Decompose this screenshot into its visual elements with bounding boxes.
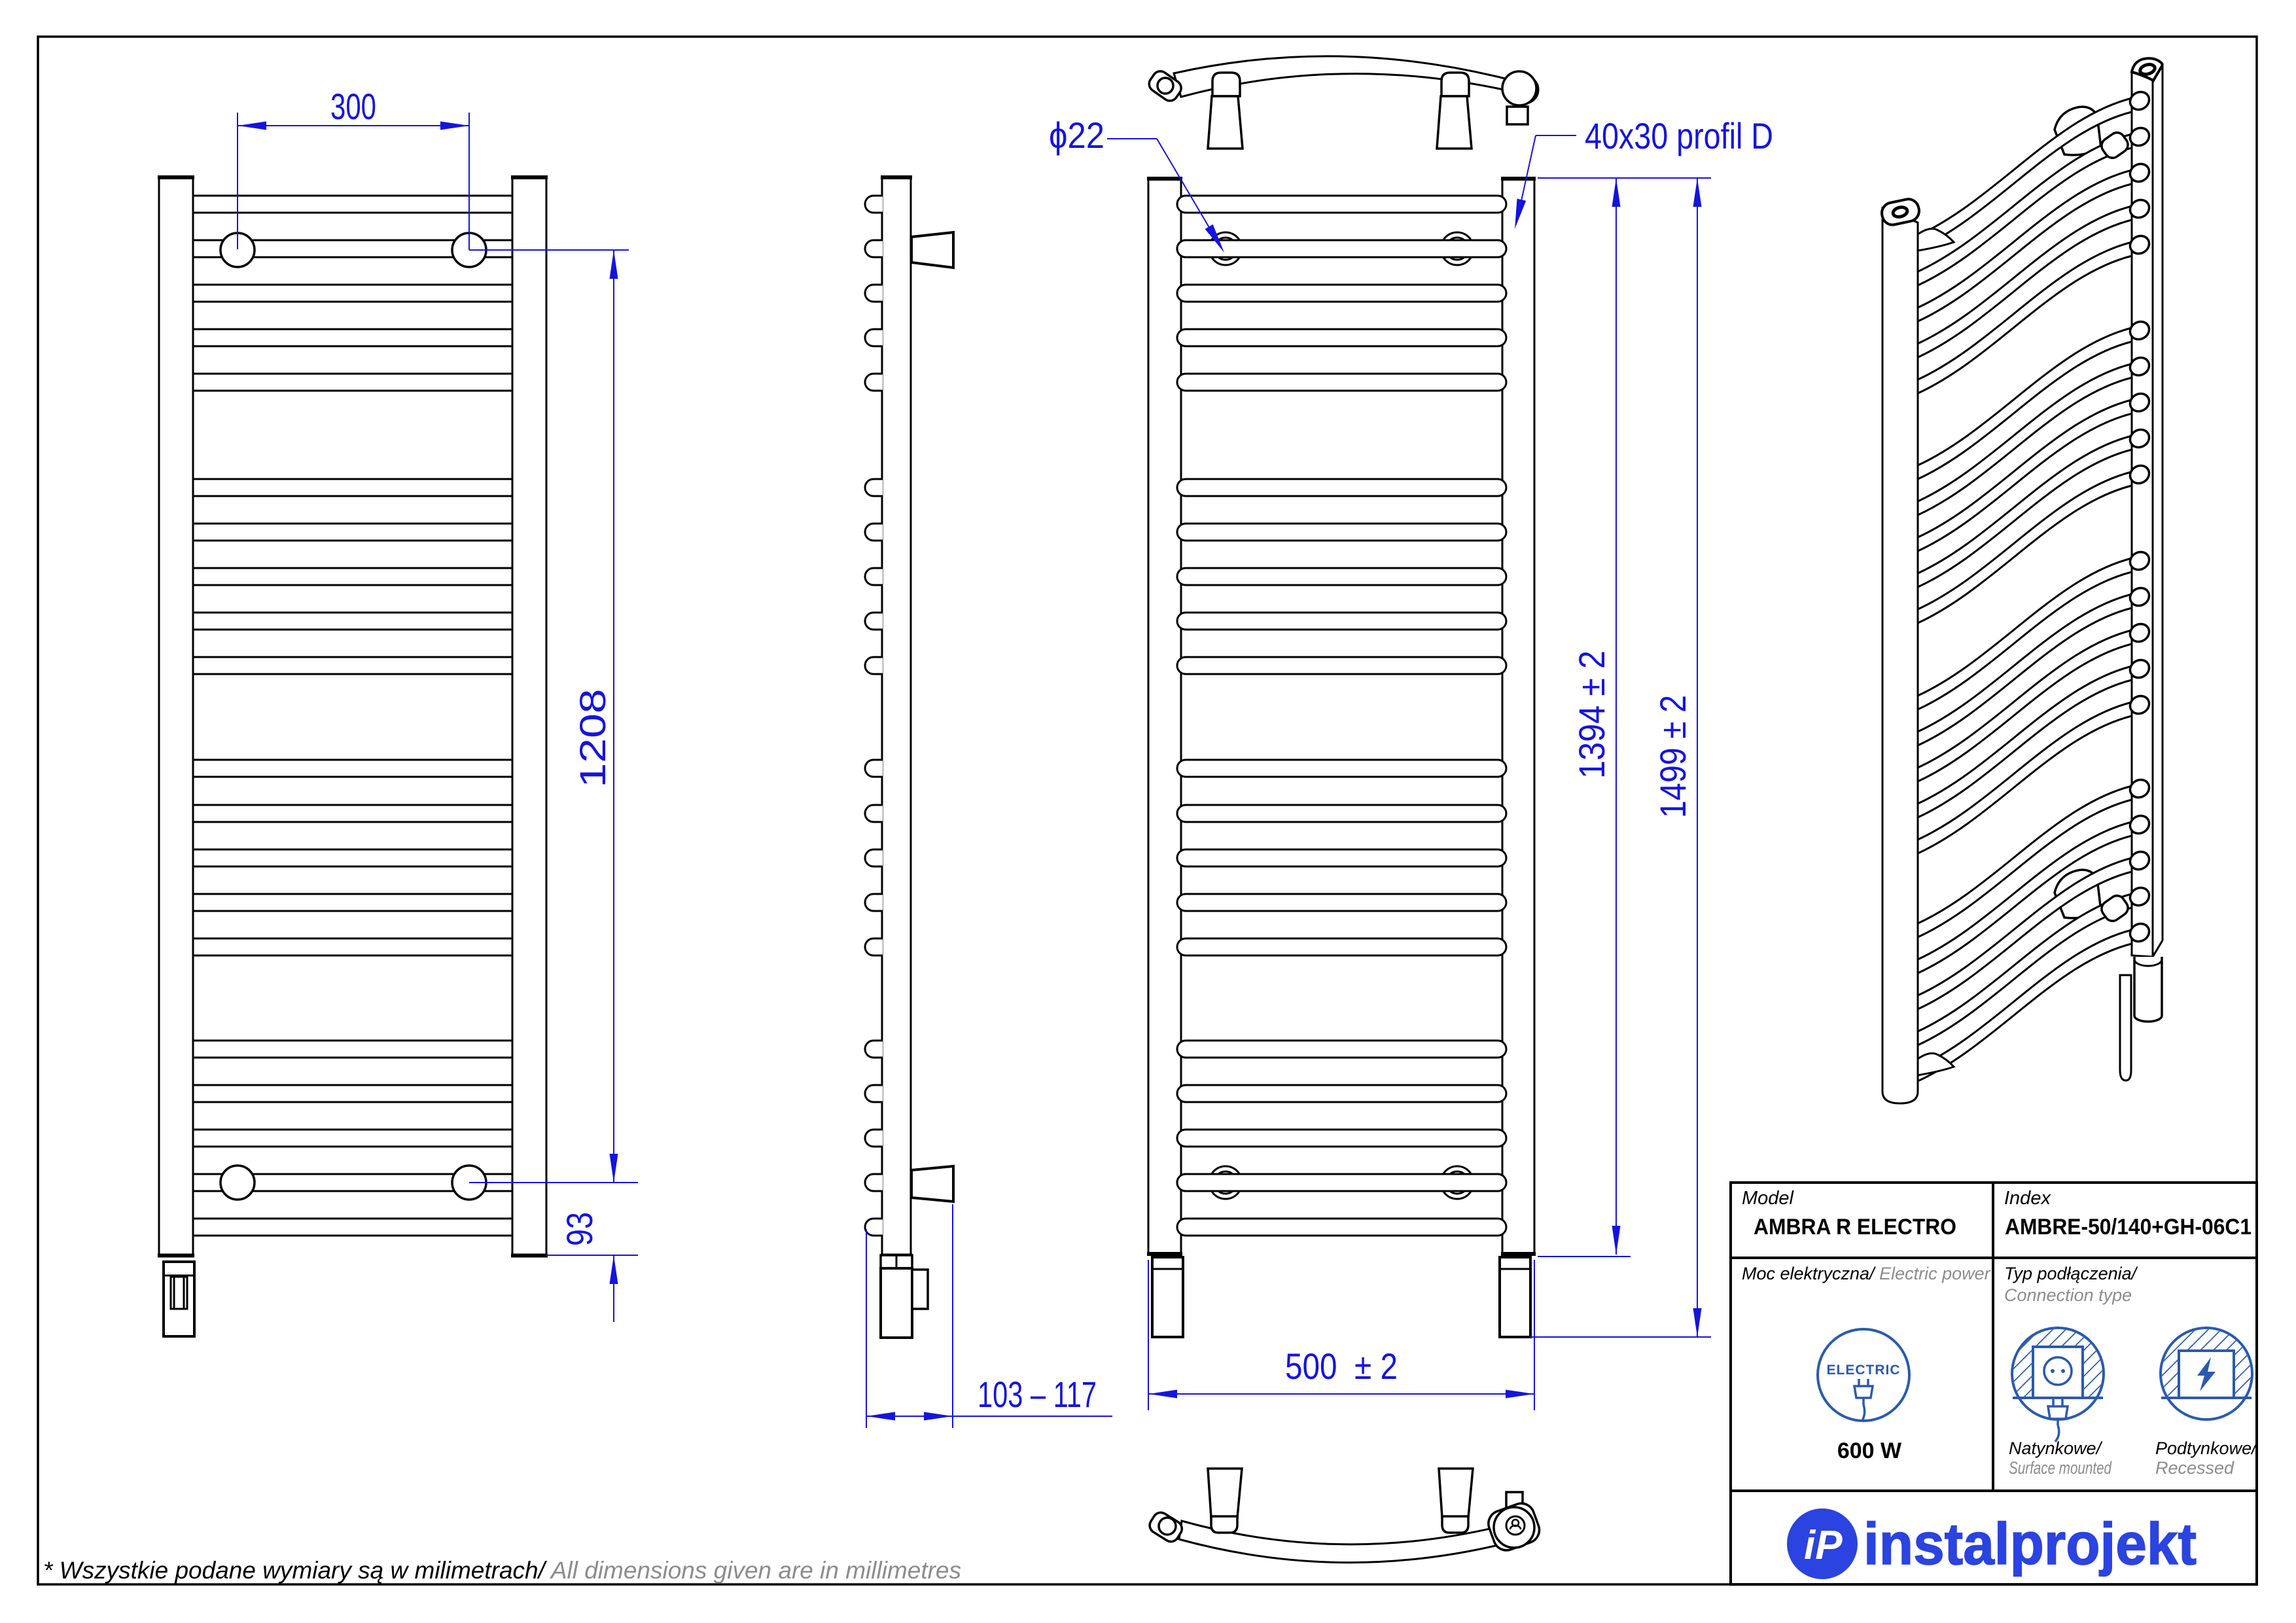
- svg-text:1499 ± 2: 1499 ± 2: [1652, 695, 1693, 818]
- svg-text:Index: Index: [2004, 1188, 2051, 1209]
- svg-text:AMBRE-50/140+GH-06C1: AMBRE-50/140+GH-06C1: [2005, 1215, 2252, 1240]
- svg-text:Surface mounted: Surface mounted: [2009, 1458, 2112, 1478]
- svg-text:Podtynkowe/: Podtynkowe/: [2155, 1438, 2258, 1458]
- svg-text:Connection type: Connection type: [2004, 1285, 2132, 1305]
- svg-text:103 – 117: 103 – 117: [978, 1374, 1097, 1415]
- svg-text:1208: 1208: [572, 689, 613, 788]
- svg-text:Typ podłączenia/: Typ podłączenia/: [2004, 1264, 2138, 1283]
- svg-text:iP: iP: [1804, 1523, 1843, 1568]
- svg-text:AMBRA R ELECTRO: AMBRA R ELECTRO: [1754, 1215, 1956, 1240]
- svg-text:Natynkowe/: Natynkowe/: [2009, 1438, 2103, 1458]
- svg-text:1394 ± 2: 1394 ± 2: [1571, 651, 1612, 779]
- svg-text:Recessed: Recessed: [2155, 1458, 2234, 1478]
- svg-text:40x30 profil D: 40x30 profil D: [1585, 115, 1773, 156]
- svg-text:600 W: 600 W: [1837, 1438, 1902, 1463]
- svg-text:* Wszystkie podane wymiary są: * Wszystkie podane wymiary są w milimetr…: [43, 1557, 961, 1584]
- svg-text:Moc elektryczna/ Electric powe: Moc elektryczna/ Electric power: [1742, 1264, 1991, 1283]
- svg-text:500 ± 2: 500 ± 2: [1285, 1346, 1398, 1387]
- svg-text:Model: Model: [1742, 1188, 1795, 1209]
- svg-text:instalprojekt: instalprojekt: [1863, 1512, 2197, 1577]
- svg-text:ELECTRIC: ELECTRIC: [1827, 1363, 1901, 1378]
- svg-text:93: 93: [559, 1212, 600, 1246]
- svg-text:ϕ22: ϕ22: [1049, 115, 1104, 156]
- svg-text:300: 300: [330, 86, 376, 127]
